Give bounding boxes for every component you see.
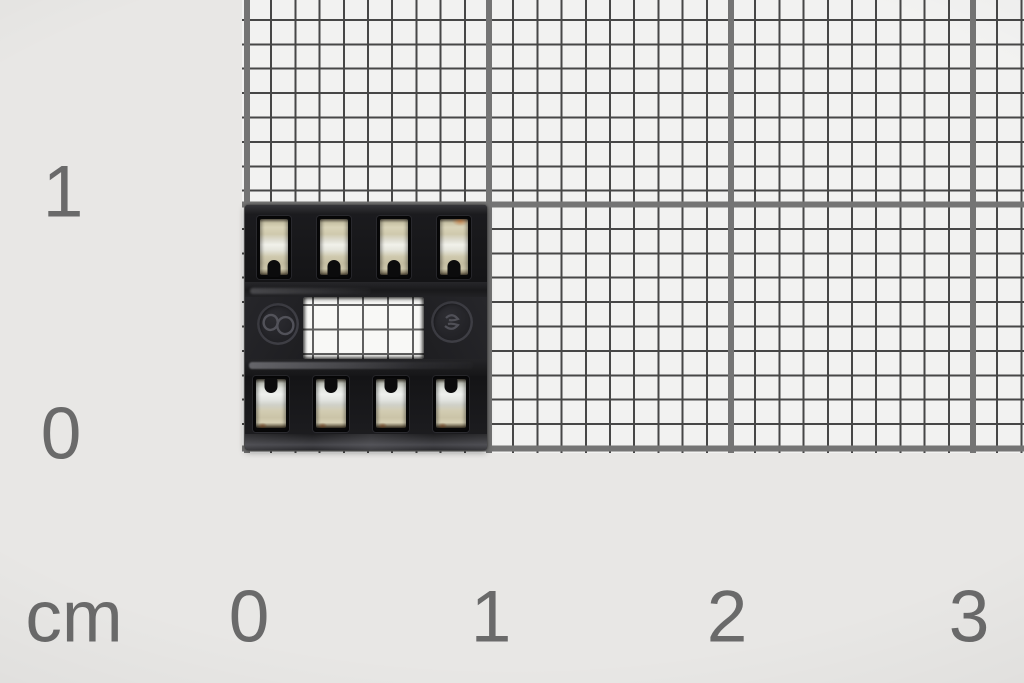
socket-contact: [437, 216, 471, 279]
manufacturer-logo-mold-mark-icon: [431, 301, 473, 343]
socket-contact: [373, 376, 409, 432]
socket-contact-row-bottom: [245, 376, 487, 434]
ruler-side-label-1cm: 1: [43, 156, 84, 229]
socket-upper-bar: [245, 282, 487, 297]
socket-contact: [377, 216, 411, 279]
socket-lower-bar: [245, 359, 487, 376]
socket-contact: [313, 376, 349, 432]
dip-ic-socket: [245, 205, 487, 450]
ruler-bottom-label-0: 0: [229, 581, 270, 654]
ruler-unit-label: cm: [25, 581, 122, 654]
socket-contact: [433, 376, 469, 432]
ruler-bottom-label-3: 3: [949, 581, 990, 654]
socket-top-rim: [245, 205, 487, 214]
figure-eight-mold-mark-icon: [257, 303, 299, 345]
socket-center-opening: [303, 297, 424, 359]
socket-contact: [257, 216, 291, 279]
socket-contact: [253, 376, 289, 432]
ruler-bottom-label-2: 2: [707, 581, 748, 654]
socket-bottom-rim: [245, 434, 487, 450]
ruler-bottom-label-1: 1: [471, 581, 512, 654]
photo-canvas: 1 0 cm 0 1 2 3: [0, 0, 1024, 683]
ruler-side-label-0cm: 0: [41, 398, 82, 471]
socket-middle-band: [245, 297, 487, 359]
socket-contact: [317, 216, 351, 279]
socket-contact-row-top: [245, 214, 487, 282]
